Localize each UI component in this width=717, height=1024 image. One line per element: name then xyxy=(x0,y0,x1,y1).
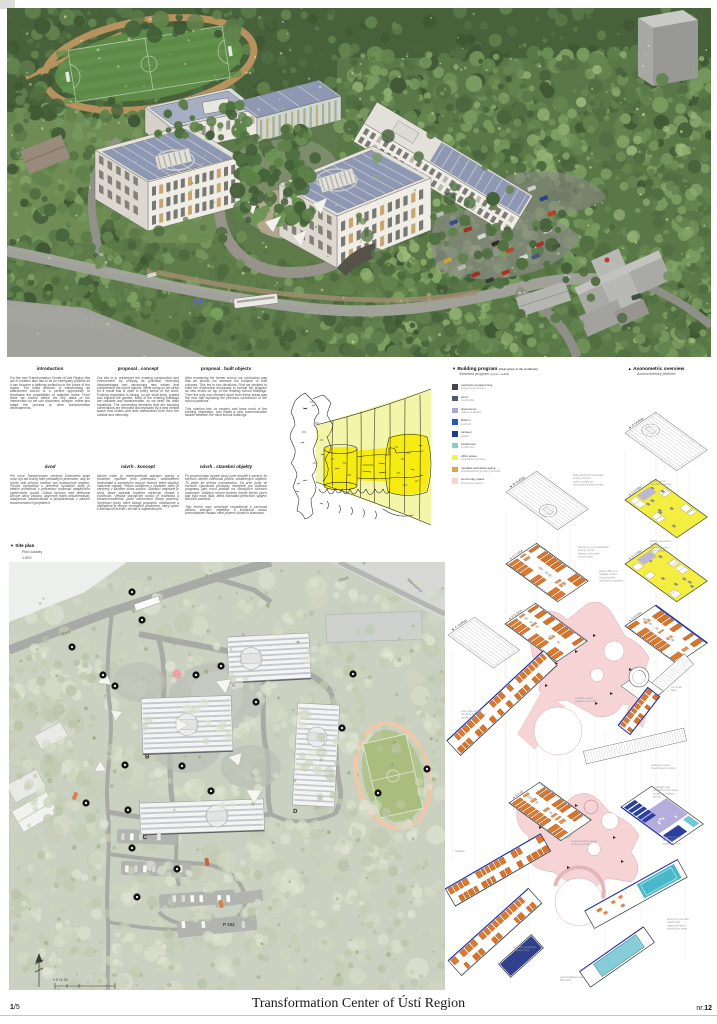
svg-text:P 102: P 102 xyxy=(223,922,235,927)
svg-text:0 5 10 25: 0 5 10 25 xyxy=(53,978,68,982)
